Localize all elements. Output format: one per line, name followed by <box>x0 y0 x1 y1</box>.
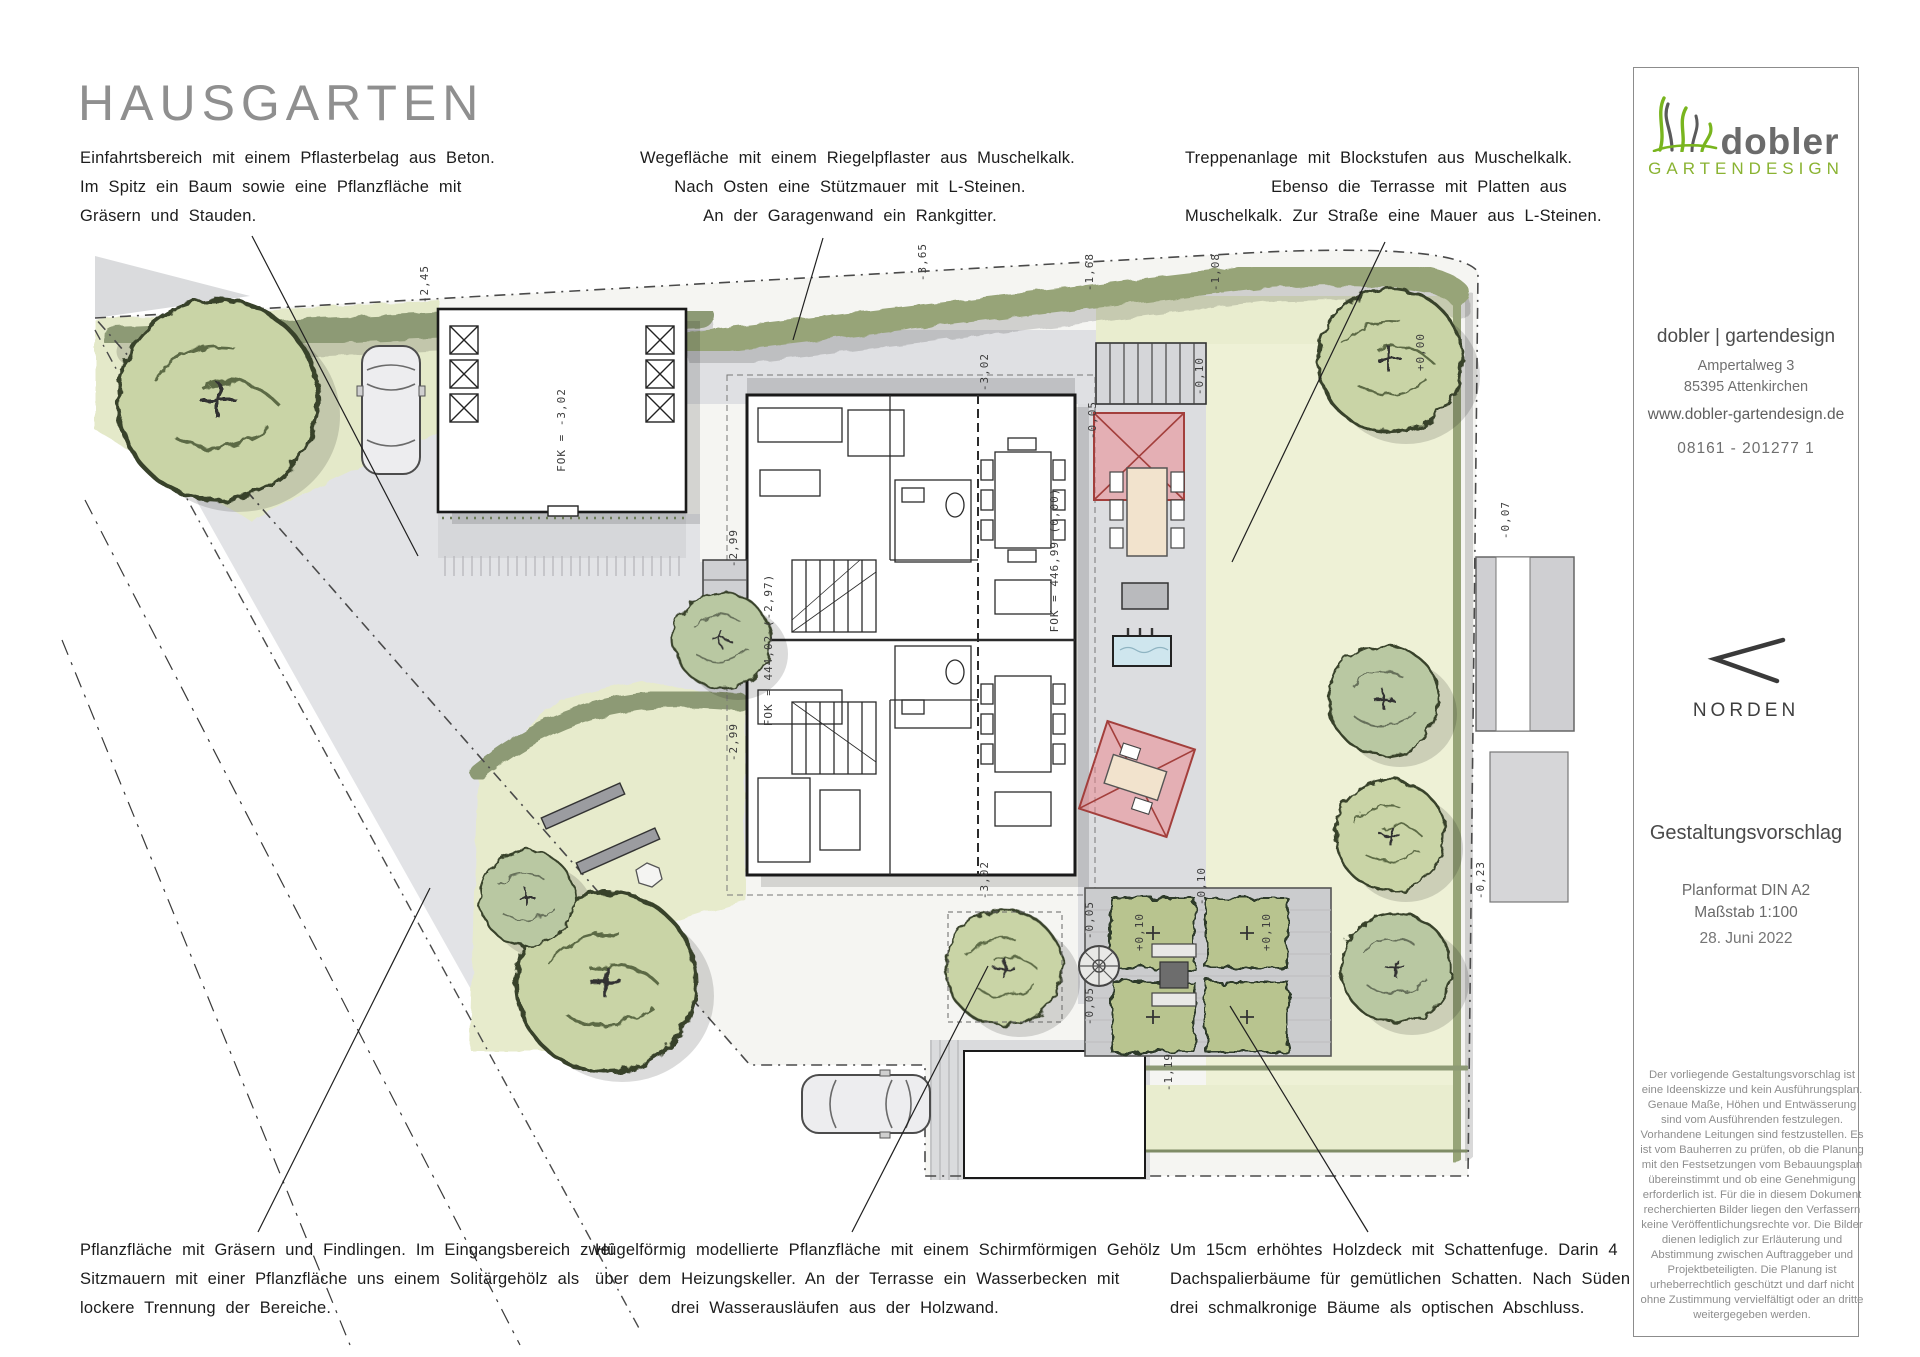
company-website[interactable]: www.dobler-gartendesign.de <box>1634 406 1858 424</box>
svg-text:-3,02: -3,02 <box>978 353 991 391</box>
grass-icon <box>1652 94 1718 157</box>
svg-text:-0,10: -0,10 <box>1195 867 1208 905</box>
plan-date: 28. Juni 2022 <box>1634 930 1858 948</box>
svg-text:-2,99: -2,99 <box>727 723 740 761</box>
garage <box>438 309 700 524</box>
car-street <box>802 1070 930 1138</box>
svg-text:-1,19: -1,19 <box>1162 1053 1175 1091</box>
svg-text:-1,08: -1,08 <box>1209 253 1222 291</box>
block-steps <box>1096 343 1206 404</box>
svg-text:+0,10: +0,10 <box>1260 913 1273 951</box>
svg-text:-3,02: -3,02 <box>978 861 991 899</box>
svg-text:-0,07: -0,07 <box>1499 501 1512 539</box>
company-phone: 08161 - 201277 1 <box>1634 440 1858 458</box>
svg-text:+0,00: +0,00 <box>1414 333 1427 371</box>
north-label: NORDEN <box>1634 700 1858 722</box>
svg-text:-0,05: -0,05 <box>1083 901 1096 939</box>
car-parked <box>357 346 425 474</box>
svg-text:+0,10: +0,10 <box>1133 913 1146 951</box>
svg-text:-0,10: -0,10 <box>1193 357 1206 395</box>
plan-format-scale: Planformat DIN A2 Maßstab 1:100 <box>1634 880 1858 924</box>
wood-deck <box>1079 888 1331 1056</box>
title-block-sidebar: dobler GARTENDESIGN dobler | gartendesig… <box>1633 67 1859 1337</box>
svg-text:-0,23: -0,23 <box>1474 861 1487 899</box>
svg-text:FOK = -3,02: FOK = -3,02 <box>555 388 568 472</box>
svg-text:-1,68: -1,68 <box>1083 253 1096 291</box>
site-plan: -2,45-3,65-3,02-1,68-1,08+0,00-0,07-2,99… <box>0 0 1920 1357</box>
svg-text:-2,45: -2,45 <box>418 265 431 303</box>
svg-text:-0,05: -0,05 <box>1086 401 1099 439</box>
svg-text:-3,65: -3,65 <box>916 243 929 281</box>
svg-text:FOK = 446,99 (0,00): FOK = 446,99 (0,00) <box>1048 488 1061 633</box>
logo-wordmark: dobler <box>1720 127 1839 157</box>
company-logo: dobler GARTENDESIGN <box>1634 94 1858 179</box>
disclaimer-text: Der vorliegende Gestaltungsvorschlag ist… <box>1634 1068 1870 1323</box>
svg-text:FOK = 444,02 (-2,97): FOK = 444,02 (-2,97) <box>762 574 775 726</box>
company-address: Ampertalweg 3 85395 Attenkirchen <box>1634 356 1858 398</box>
company-name: dobler | gartendesign <box>1634 326 1858 348</box>
logo-subtitle: GARTENDESIGN <box>1634 159 1858 179</box>
plan-type: Gestaltungsvorschlag <box>1634 822 1858 845</box>
north-arrow-icon <box>1634 633 1858 690</box>
svg-text:-2,99: -2,99 <box>727 529 740 567</box>
svg-text:-0,05: -0,05 <box>1083 987 1096 1025</box>
neighbor-house-south <box>964 1051 1145 1178</box>
